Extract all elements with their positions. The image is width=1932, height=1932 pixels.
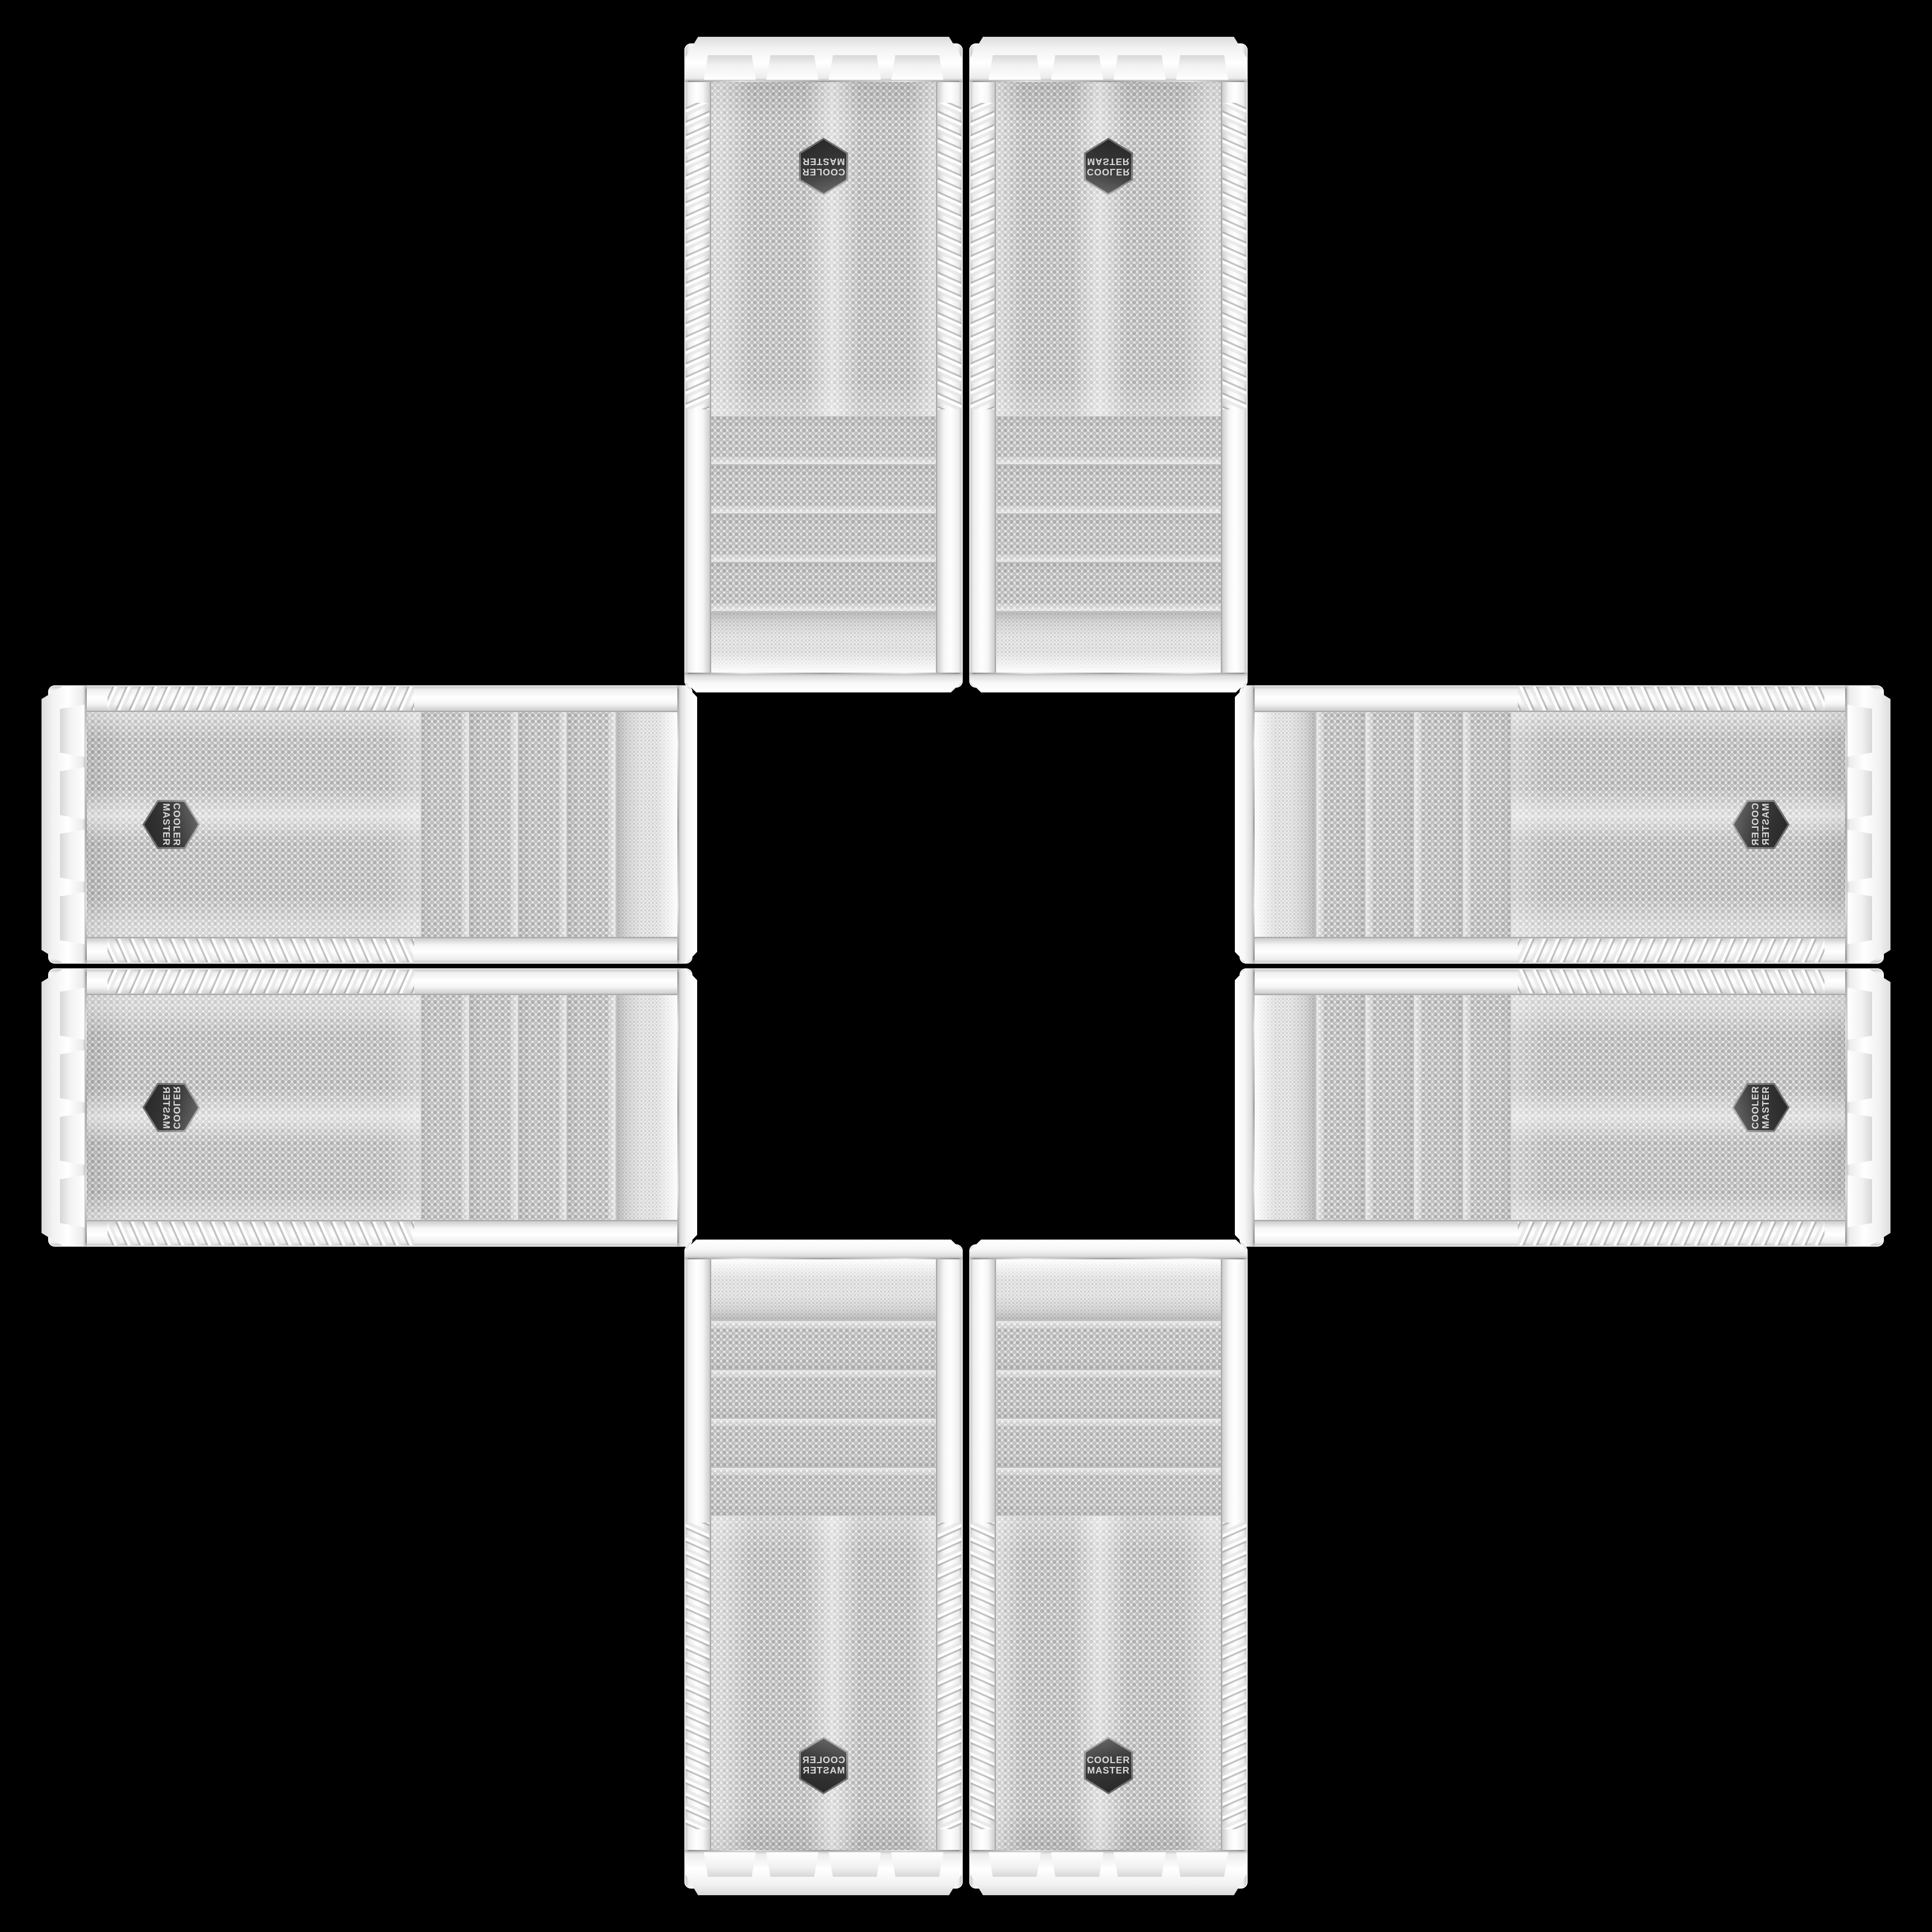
bottom-cap: [1845, 686, 1890, 963]
front-face: COOLER MASTER: [995, 1256, 1222, 1851]
front-mesh: COOLER MASTER: [711, 1516, 936, 1851]
chrome-seam: [1253, 972, 1255, 1243]
chrome-seam: [688, 673, 959, 674]
front-mesh: COOLER MASTER: [86, 995, 421, 1220]
bottom-cap: [970, 37, 1247, 82]
drive-bay-cover: [1462, 712, 1511, 937]
drive-bay-cover: [996, 1369, 1221, 1418]
side-trim-right: [684, 1244, 711, 1889]
badge-text-line2: MASTER: [1761, 1086, 1771, 1129]
badge-text-line2: MASTER: [161, 803, 171, 846]
drive-bay-cover: [519, 712, 568, 937]
grip-ribs-icon: [108, 970, 414, 993]
badge-text-line2: MASTER: [1087, 1765, 1130, 1776]
case-front-panel: COOLER MASTER: [42, 685, 697, 964]
grip-ribs-icon: [1518, 687, 1824, 710]
cooler-master-badge-icon: COOLER MASTER: [1732, 1083, 1790, 1132]
cooler-master-badge-icon: COOLER MASTER: [142, 800, 200, 849]
chrome-seam: [973, 673, 1244, 674]
cooler-master-badge-icon: COOLER MASTER: [1732, 800, 1790, 849]
cap-ridges-icon: [989, 1852, 1228, 1877]
drive-bay-cover: [711, 1369, 936, 1418]
grip-ribs-icon: [1518, 970, 1824, 993]
drive-bay-cover: [1316, 712, 1364, 937]
badge-text-line1: COOLER: [1750, 1086, 1761, 1129]
badge-text-line2: MASTER: [161, 1086, 171, 1129]
cooler-master-badge-face: COOLER MASTER: [144, 802, 198, 847]
side-trim-right: [1221, 1244, 1248, 1889]
drive-bay-covers: [996, 416, 1221, 612]
cap-ridges-icon: [989, 55, 1228, 80]
case-front-panel: COOLER MASTER: [969, 37, 1248, 692]
cooler-master-badge-icon: COOLER MASTER: [799, 138, 848, 195]
front-face: COOLER MASTER: [710, 1256, 937, 1851]
drive-bay-cover: [568, 712, 616, 937]
drive-bay-cover: [996, 417, 1221, 466]
chrome-seam: [973, 1850, 1244, 1851]
badge-text-line1: COOLER: [1087, 167, 1130, 177]
chrome-seam: [688, 1850, 959, 1851]
cooler-master-badge-face: COOLER MASTER: [801, 140, 846, 193]
top-cap: [677, 686, 697, 963]
front-mesh: COOLER MASTER: [996, 81, 1221, 416]
cooler-master-badge-icon: COOLER MASTER: [799, 1737, 848, 1794]
cap-ridges-icon: [60, 988, 84, 1227]
badge-text-line2: MASTER: [802, 156, 845, 167]
badge-text-line1: COOLER: [171, 1086, 182, 1129]
side-trim-right: [1221, 43, 1248, 688]
badge-text-line1: COOLER: [171, 803, 182, 846]
top-cap: [970, 673, 1247, 692]
cooler-master-badge-face: COOLER MASTER: [1734, 1085, 1788, 1130]
drive-bay-cover: [1364, 995, 1413, 1220]
chrome-seam: [1253, 689, 1255, 960]
grip-ribs-icon: [938, 1523, 961, 1829]
drive-bay-covers: [711, 416, 936, 612]
front-face: COOLER MASTER: [86, 994, 681, 1221]
side-trim-right: [1240, 937, 1884, 964]
front-mesh: COOLER MASTER: [996, 1516, 1221, 1851]
drive-bay-cover: [471, 712, 520, 937]
top-cap: [677, 969, 697, 1246]
side-trim-left: [969, 43, 996, 688]
cap-ridges-icon: [704, 1852, 943, 1877]
drive-bay-cover: [996, 515, 1221, 564]
bottom-cap: [685, 37, 962, 82]
cooler-master-badge-face: COOLER MASTER: [1734, 802, 1788, 847]
cap-ridges-icon: [60, 705, 84, 944]
top-cap: [1235, 969, 1255, 1246]
grip-ribs-icon: [108, 1222, 414, 1245]
drive-bay-cover: [1316, 995, 1364, 1220]
drive-bay-covers: [421, 995, 617, 1220]
top-mesh-band: [1255, 995, 1315, 1220]
case-front-panel: COOLER MASTER: [42, 968, 697, 1247]
cooler-master-badge-icon: COOLER MASTER: [1084, 1737, 1133, 1794]
case-front-panel: COOLER MASTER: [969, 1240, 1248, 1895]
drive-bay-cover: [711, 564, 936, 611]
side-trim-left: [936, 43, 963, 688]
drive-bay-cover: [422, 995, 471, 1220]
chrome-seam: [85, 689, 87, 960]
side-trim-right: [48, 937, 692, 964]
top-cap: [970, 1240, 1247, 1259]
cooler-master-badge-face: COOLER MASTER: [1086, 1739, 1131, 1792]
collage-canvas: COOLER MASTER: [0, 0, 1932, 1932]
badge-text-line1: COOLER: [802, 167, 845, 177]
drive-bay-cover: [711, 417, 936, 466]
grip-ribs-icon: [1518, 1222, 1824, 1245]
grip-ribs-icon: [971, 103, 994, 409]
grip-ribs-icon: [686, 1523, 709, 1829]
badge-text-line2: MASTER: [1761, 803, 1771, 846]
grip-ribs-icon: [1518, 939, 1824, 962]
side-trim-left: [1240, 1220, 1884, 1247]
top-mesh-band: [996, 612, 1221, 673]
cap-ridges-icon: [704, 55, 943, 80]
cooler-master-badge-face: COOLER MASTER: [1086, 140, 1131, 193]
badge-text-line1: COOLER: [1087, 1755, 1130, 1765]
drive-bay-cover: [422, 712, 471, 937]
drive-bay-cover: [996, 564, 1221, 611]
front-face: COOLER MASTER: [86, 711, 681, 938]
case-front-panel: COOLER MASTER: [684, 1240, 963, 1895]
bottom-cap: [42, 686, 87, 963]
top-mesh-band: [617, 712, 677, 937]
side-trim-left: [48, 685, 692, 712]
bottom-cap: [1845, 969, 1890, 1246]
drive-bay-covers: [421, 712, 617, 937]
drive-bay-cover: [568, 995, 616, 1220]
cap-ridges-icon: [1848, 988, 1872, 1227]
grip-ribs-icon: [971, 1523, 994, 1829]
drive-bay-covers: [1315, 712, 1511, 937]
grip-ribs-icon: [686, 103, 709, 409]
top-mesh-band: [1255, 712, 1315, 937]
drive-bay-cover: [471, 995, 520, 1220]
drive-bay-cover: [1364, 712, 1413, 937]
drive-bay-cover: [996, 1417, 1221, 1466]
drive-bay-cover: [711, 1466, 936, 1516]
grip-ribs-icon: [1223, 1523, 1246, 1829]
grip-ribs-icon: [108, 687, 414, 710]
chrome-seam: [973, 81, 1244, 82]
front-mesh: COOLER MASTER: [1511, 995, 1846, 1220]
front-mesh: COOLER MASTER: [711, 81, 936, 416]
chrome-seam: [973, 1258, 1244, 1259]
chrome-seam: [85, 972, 87, 1243]
badge-text-line1: COOLER: [1750, 803, 1761, 846]
top-cap: [1235, 686, 1255, 963]
side-trim-right: [48, 968, 692, 995]
drive-bay-cover: [996, 1466, 1221, 1516]
chrome-seam: [688, 1258, 959, 1259]
front-mesh: COOLER MASTER: [86, 712, 421, 937]
drive-bay-covers: [996, 1320, 1221, 1516]
drive-bay-cover: [1413, 712, 1462, 937]
drive-bay-cover: [996, 1321, 1221, 1369]
cooler-master-badge-icon: COOLER MASTER: [1084, 138, 1133, 195]
top-cap: [685, 1240, 962, 1259]
cooler-master-badge-face: COOLER MASTER: [144, 1085, 198, 1130]
badge-text-line2: MASTER: [802, 1765, 845, 1776]
drive-bay-cover: [711, 466, 936, 515]
cooler-master-badge-icon: COOLER MASTER: [142, 1083, 200, 1132]
grip-ribs-icon: [1223, 103, 1246, 409]
top-mesh-band: [711, 612, 936, 673]
drive-bay-cover: [1462, 995, 1511, 1220]
case-front-panel: COOLER MASTER: [684, 37, 963, 692]
side-trim-left: [936, 1244, 963, 1889]
front-face: COOLER MASTER: [995, 81, 1222, 676]
top-mesh-band: [617, 995, 677, 1220]
drive-bay-cover: [711, 1417, 936, 1466]
grip-ribs-icon: [938, 103, 961, 409]
side-trim-right: [1240, 968, 1884, 995]
case-front-panel: COOLER MASTER: [1235, 685, 1890, 964]
badge-text-line2: MASTER: [1087, 156, 1130, 167]
side-trim-right: [684, 43, 711, 688]
chrome-seam: [688, 81, 959, 82]
chrome-seam: [1845, 972, 1847, 1243]
front-mesh: COOLER MASTER: [1511, 712, 1846, 937]
front-face: COOLER MASTER: [1251, 994, 1846, 1221]
bottom-cap: [42, 969, 87, 1246]
chrome-seam: [1845, 689, 1847, 960]
side-trim-left: [1240, 685, 1884, 712]
top-cap: [685, 673, 962, 692]
top-mesh-band: [996, 1259, 1221, 1320]
drive-bay-cover: [711, 1321, 936, 1369]
bottom-cap: [685, 1850, 962, 1895]
drive-bay-cover: [711, 515, 936, 564]
case-front-panel: COOLER MASTER: [1235, 968, 1890, 1247]
chrome-seam: [677, 689, 679, 960]
drive-bay-cover: [519, 995, 568, 1220]
side-trim-left: [969, 1244, 996, 1889]
drive-bay-cover: [1413, 995, 1462, 1220]
front-face: COOLER MASTER: [710, 81, 937, 676]
drive-bay-covers: [1315, 995, 1511, 1220]
drive-bay-covers: [711, 1320, 936, 1516]
side-trim-left: [48, 1220, 692, 1247]
cooler-master-badge-face: COOLER MASTER: [801, 1739, 846, 1792]
top-mesh-band: [711, 1259, 936, 1320]
cap-ridges-icon: [1848, 705, 1872, 944]
drive-bay-cover: [996, 466, 1221, 515]
badge-text-line1: COOLER: [802, 1755, 845, 1765]
bottom-cap: [970, 1850, 1247, 1895]
front-face: COOLER MASTER: [1251, 711, 1846, 938]
grip-ribs-icon: [108, 939, 414, 962]
chrome-seam: [677, 972, 679, 1243]
